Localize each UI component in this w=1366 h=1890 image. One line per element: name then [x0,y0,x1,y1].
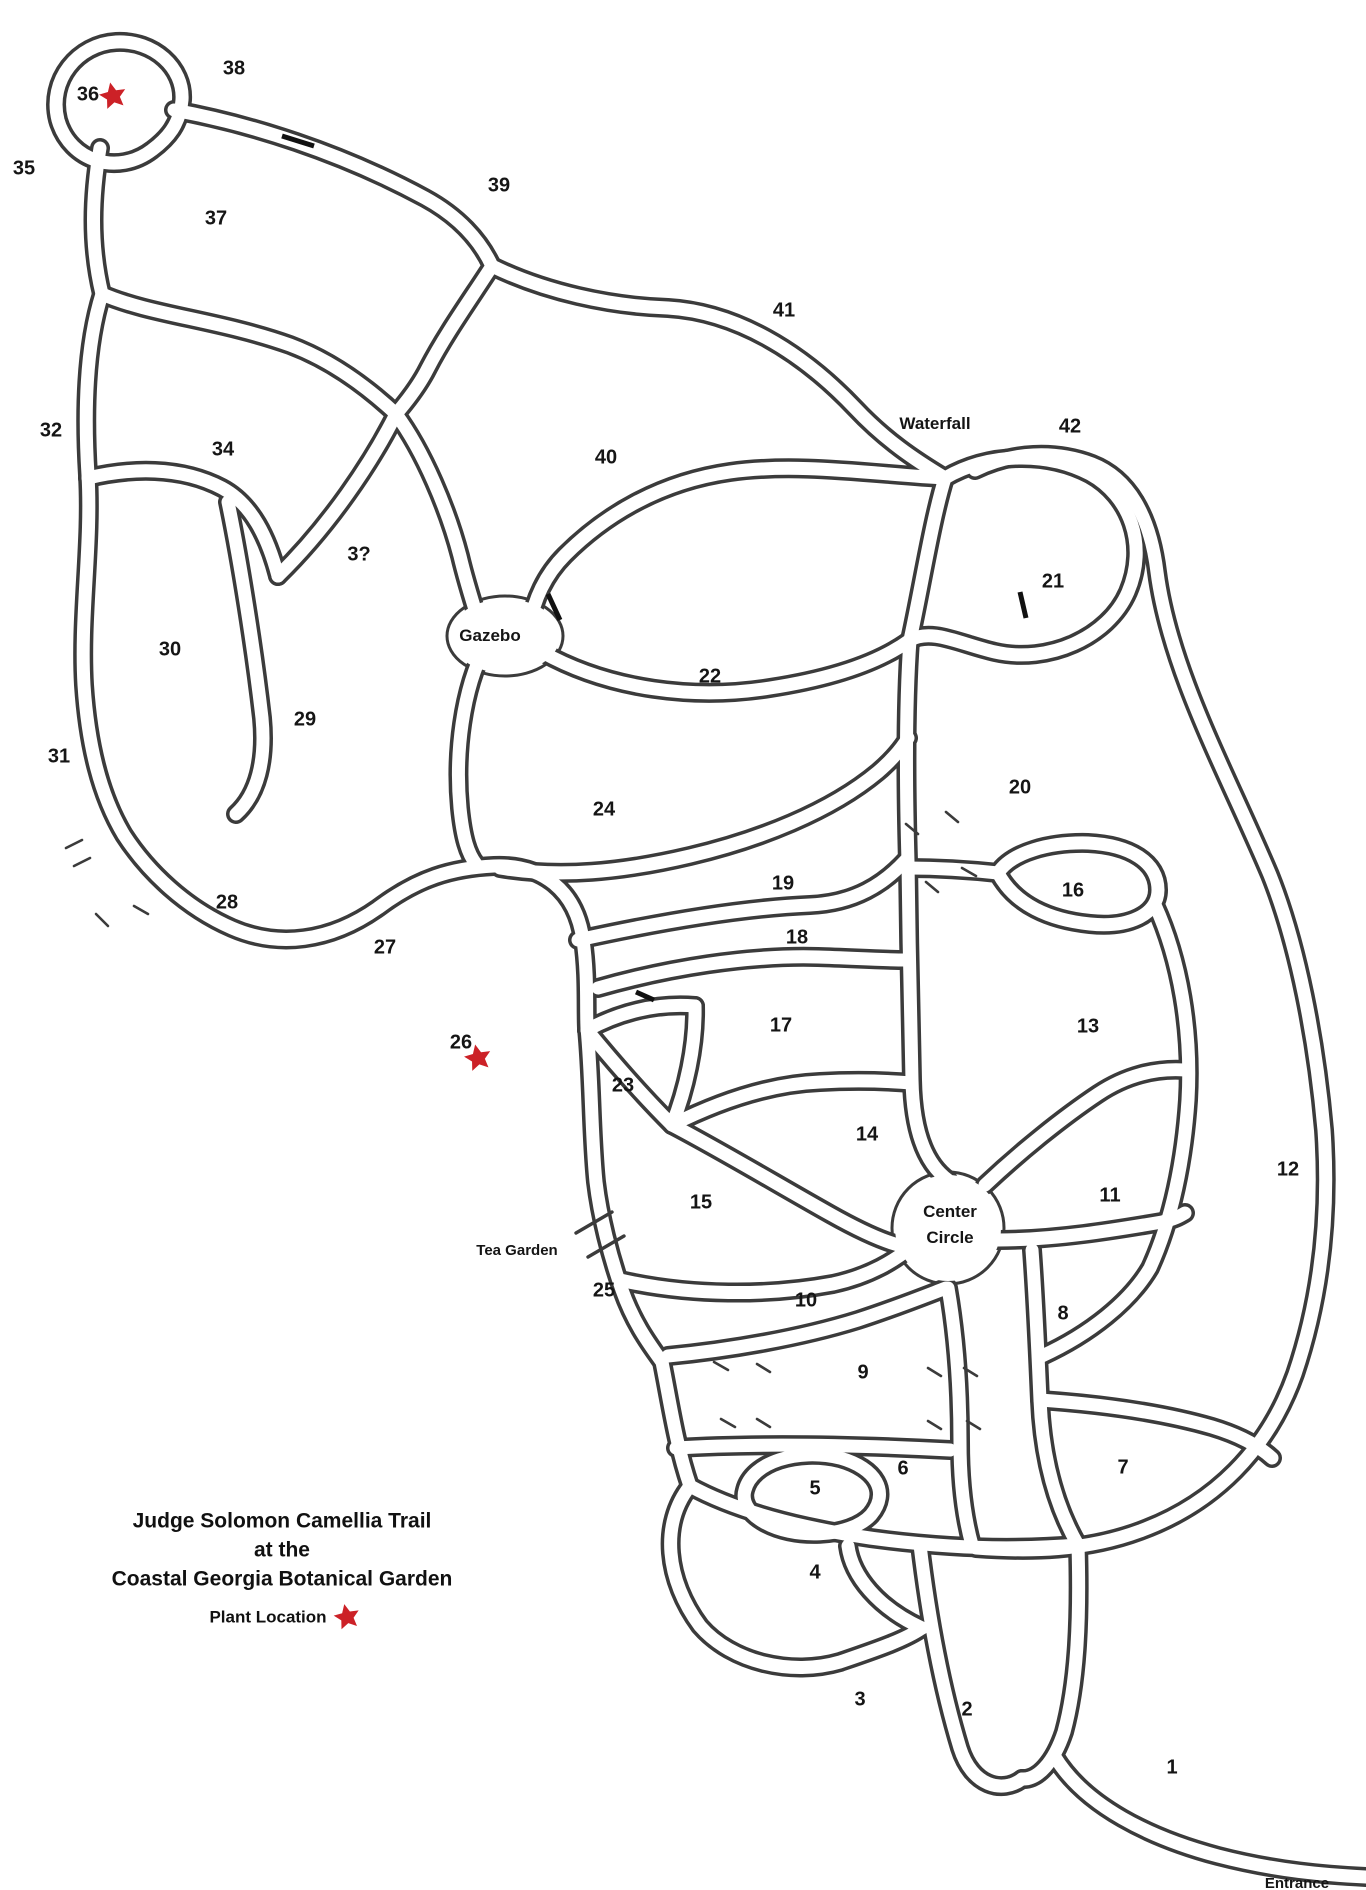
bed-label-15: 15 [690,1191,712,1213]
bed-label-5: 5 [809,1477,820,1499]
bed-label-42: 42 [1059,415,1081,437]
bed-label-6: 6 [897,1457,908,1479]
bed-label-31: 31 [48,745,70,767]
bed-label-10: 10 [795,1289,817,1311]
bed-label-27: 27 [374,936,396,958]
bed-label-40: 40 [595,446,617,468]
legend-label: Plant Location [209,1607,326,1626]
map-title-line-2: at the [254,1539,310,1562]
bed-label-11: 11 [1099,1184,1120,1206]
place-label-waterfall: Waterfall [899,414,970,433]
bed-label-41: 41 [773,299,795,321]
bed-label-18: 18 [786,926,808,948]
bed-label-9: 9 [857,1361,868,1383]
bed-label-34: 34 [212,438,235,460]
bed-label-4: 4 [809,1561,821,1583]
bed-label-21: 21 [1042,570,1064,592]
bed-label-37: 37 [205,207,227,229]
map-title-line-3: Coastal Georgia Botanical Garden [112,1568,453,1591]
trail-map: 1234567891011121314151617181920212223242… [0,0,1366,1890]
bed-label-26: 26 [450,1031,472,1053]
bed-label-28: 28 [216,891,238,913]
bed-label-35: 35 [13,157,35,179]
bed-label-14: 14 [856,1123,879,1145]
bed-label-13: 13 [1077,1015,1099,1037]
camellia-trail-map-page: 1234567891011121314151617181920212223242… [0,0,1366,1890]
bed-label-30: 30 [159,638,181,660]
bed-label-19: 19 [772,872,794,894]
bed-label-23: 23 [612,1074,634,1096]
bed-label-16: 16 [1062,879,1084,901]
place-label-entrance: Entrance [1265,1875,1329,1890]
bed-label-36: 36 [77,83,99,105]
bed-label-12: 12 [1277,1158,1299,1180]
bed-label-2: 2 [961,1698,972,1720]
bed-label-32: 32 [40,419,62,441]
bed-label-1: 1 [1166,1756,1177,1778]
place-label-tea-garden: Tea Garden [476,1242,557,1259]
bed-label-7: 7 [1117,1456,1128,1478]
map-title-line-1: Judge Solomon Camellia Trail [133,1510,432,1533]
bed-label-33: 3? [347,543,370,565]
bed-label-17: 17 [770,1014,792,1036]
bed-label-24: 24 [593,798,616,820]
bed-label-22: 22 [699,665,721,687]
bed-label-39: 39 [488,174,510,196]
bed-label-20: 20 [1009,776,1031,798]
bed-label-38: 38 [223,57,245,79]
bed-label-29: 29 [294,708,316,730]
place-label-gazebo: Gazebo [459,626,520,645]
bed-label-25: 25 [593,1279,615,1301]
bed-label-3: 3 [854,1688,865,1710]
bed-label-8: 8 [1057,1302,1068,1324]
